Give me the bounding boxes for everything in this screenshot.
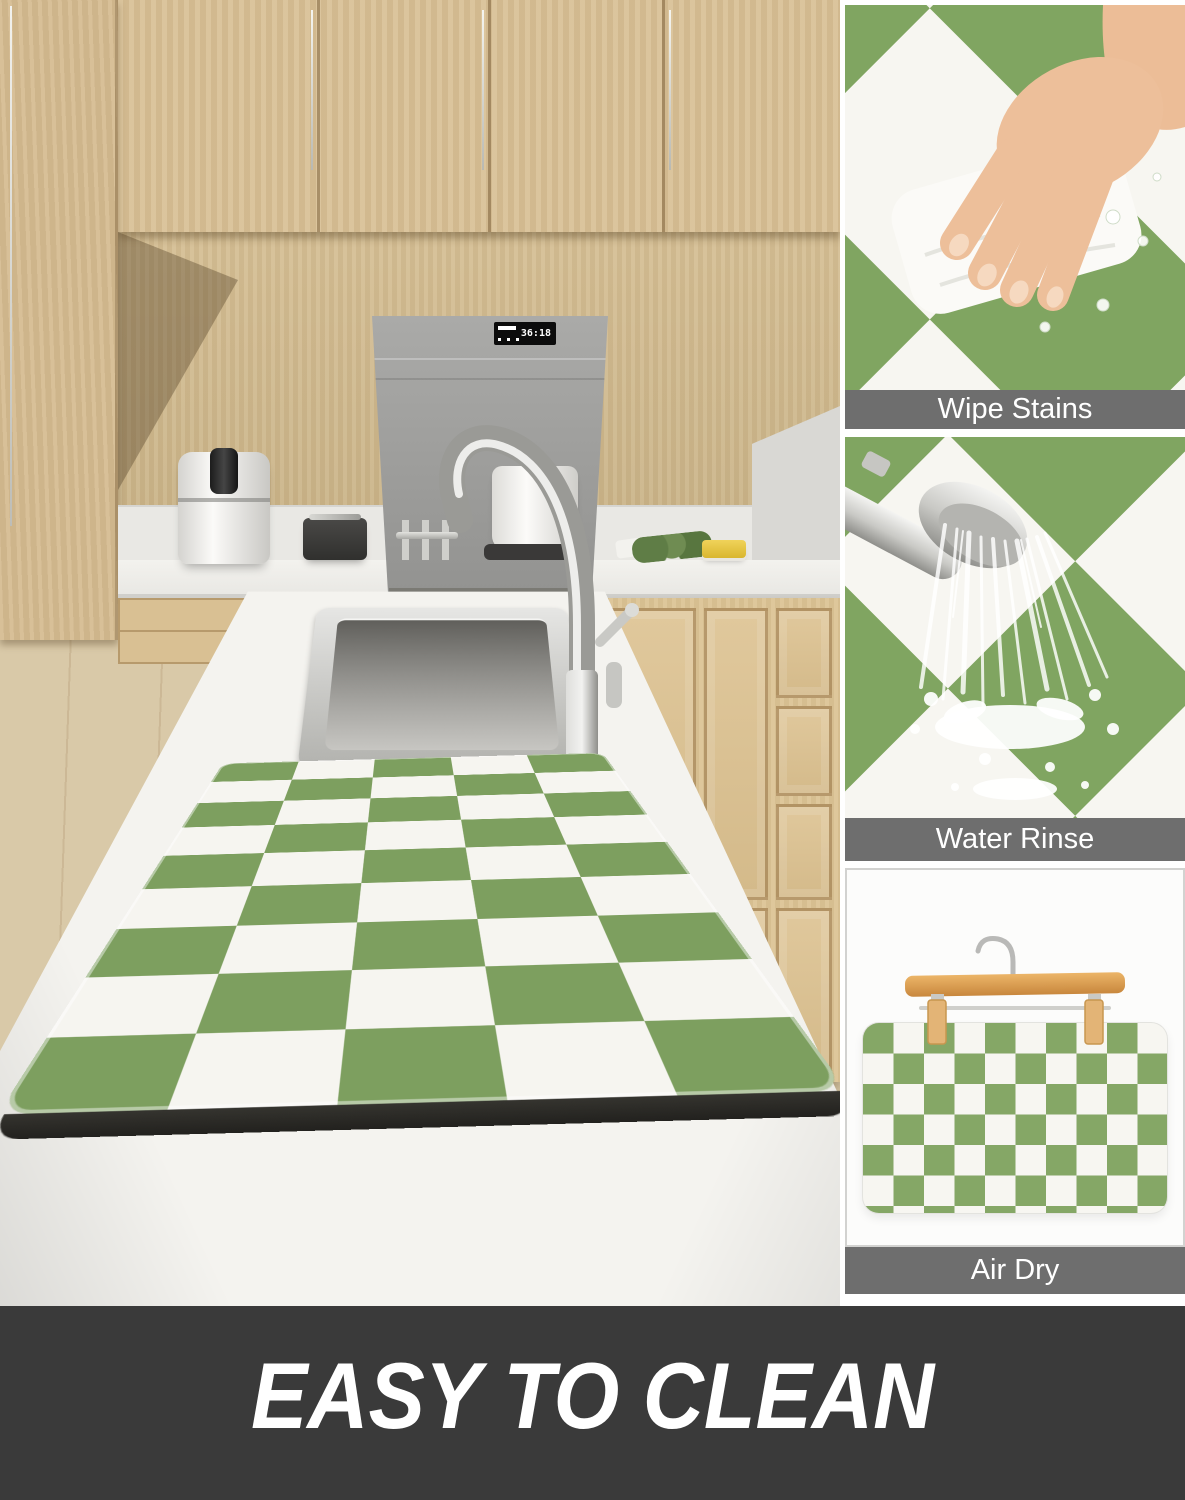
hood-seam <box>372 358 608 360</box>
label-water-rinse: Water Rinse <box>845 818 1185 861</box>
feature-panel-water-rinse <box>845 437 1185 818</box>
cabinet-door-seam <box>662 0 665 232</box>
banner-title: EASY TO CLEAN <box>251 1342 934 1464</box>
faucet-handle-knob <box>625 603 639 617</box>
feature-panel-wipe-stains <box>845 5 1185 390</box>
kitchen-photo: 36:18 <box>0 0 840 1306</box>
label-wipe-stains: Wipe Stains <box>845 390 1185 429</box>
water-splash <box>910 689 1119 800</box>
hanger-clip <box>928 994 946 1044</box>
drying-mat-perspective <box>0 746 840 1290</box>
hanger-clip <box>1085 994 1103 1044</box>
faucet <box>380 370 680 790</box>
cabinet-handle <box>669 10 671 170</box>
shower-head-icon <box>845 450 1042 586</box>
feature-column: Wipe Stains <box>845 0 1185 1306</box>
gas-burner <box>303 518 367 560</box>
tall-pantry-cabinet <box>0 0 118 640</box>
label-air-dry: Air Dry <box>845 1247 1185 1294</box>
product-image: 36:18 <box>0 0 1185 1500</box>
wooden-hanger-illustration <box>845 868 1185 1247</box>
cabinet-drawer <box>776 608 832 698</box>
checkered-drying-mat <box>0 753 840 1115</box>
hanger-hook-icon <box>978 939 1013 975</box>
butter-dish <box>702 540 746 558</box>
feature-panel-air-dry <box>845 868 1185 1247</box>
side-sprayer <box>606 662 622 708</box>
bottom-banner: EASY TO CLEAN <box>0 1306 1185 1500</box>
hanger-wood-bar <box>905 972 1125 997</box>
upper-cabinets <box>118 0 840 232</box>
cabinet-door-seam <box>488 0 491 232</box>
cabinet-handle <box>482 10 484 170</box>
cabinet-handle <box>10 6 12 526</box>
cabinet-handle <box>311 10 313 170</box>
faucet-neck <box>452 438 582 770</box>
shower-rinse-illustration <box>845 437 1185 818</box>
hanger-rail <box>919 1006 1111 1010</box>
hood-display: 36:18 <box>494 322 556 345</box>
cabinet-door-seam <box>317 0 320 232</box>
pressure-cooker <box>178 452 270 564</box>
hand-wiping-illustration <box>845 5 1185 390</box>
